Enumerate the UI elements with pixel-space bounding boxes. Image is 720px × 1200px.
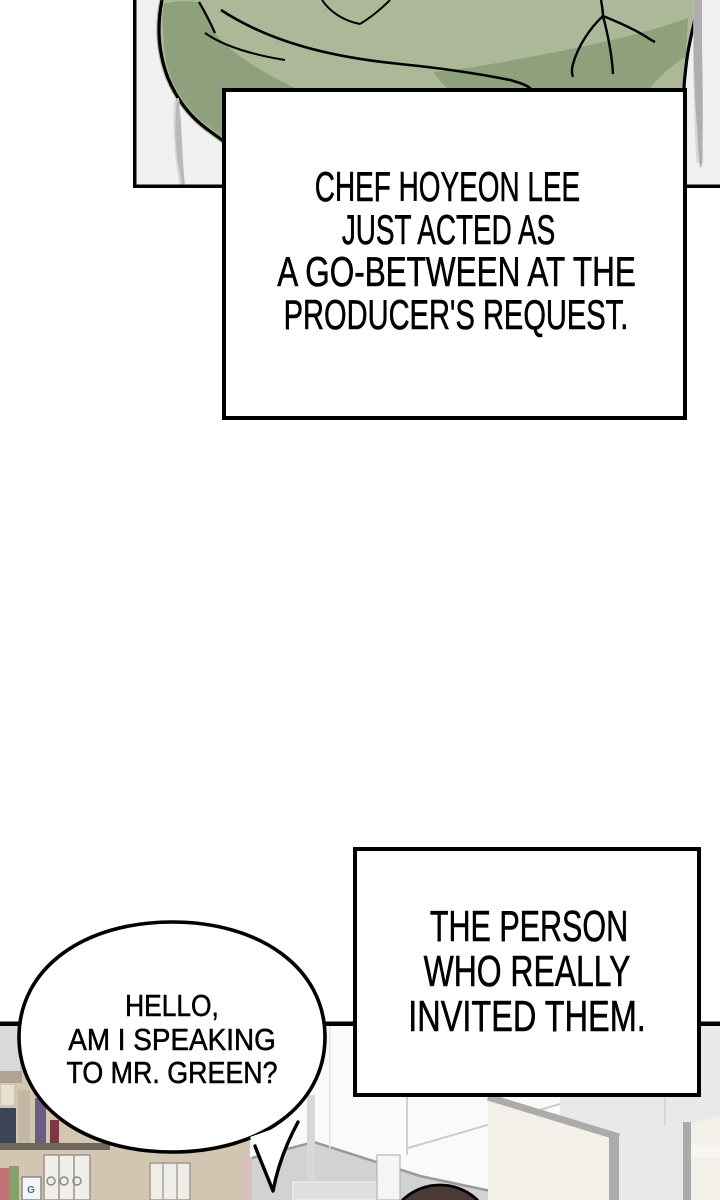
svg-text:G: G: [27, 1185, 35, 1196]
